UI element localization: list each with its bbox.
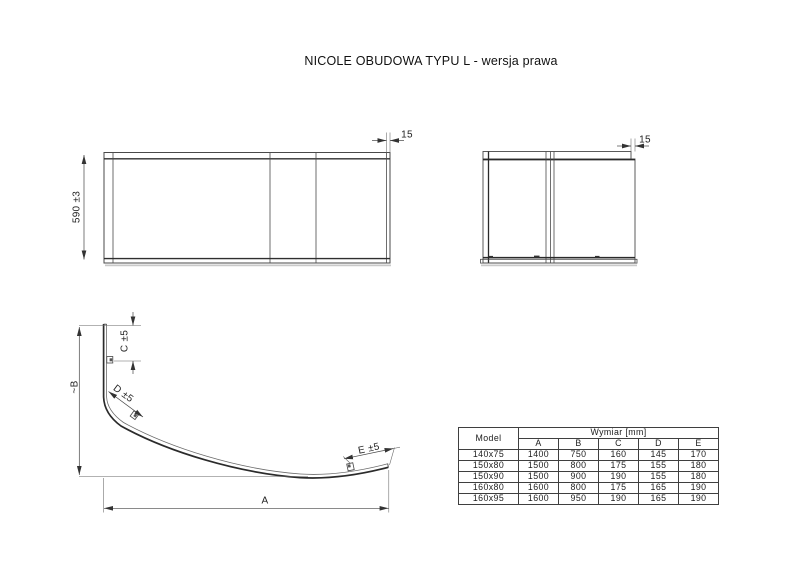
table-cell: 1500 [519, 472, 559, 483]
table-cell: 800 [559, 483, 599, 494]
table-cell: 160 [599, 450, 639, 461]
table-cell: 155 [639, 472, 679, 483]
table-row: 140x75 1400 750 160 145 170 [459, 450, 719, 461]
table-cell: 180 [679, 461, 719, 472]
table-cell: 190 [599, 494, 639, 505]
table-cell: 155 [639, 461, 679, 472]
table-cell: 145 [639, 450, 679, 461]
front-flange-dim-label: 15 [401, 130, 413, 141]
table-header-col-b: B [559, 439, 599, 450]
front-view-dimensions [84, 133, 404, 260]
table-cell: 1600 [519, 483, 559, 494]
profile-dim-c-label: C ±5 [120, 330, 131, 352]
profile-view-drawing [104, 324, 389, 478]
table-row: 160x95 1600 950 190 165 190 [459, 494, 719, 505]
side-flange-dim-label: 15 [639, 135, 651, 146]
front-view-drawing [104, 153, 391, 266]
table-cell: 1600 [519, 494, 559, 505]
table-cell: 950 [559, 494, 599, 505]
table-header-group: Wymiar [mm] [519, 428, 719, 439]
table-header-col-a: A [519, 439, 559, 450]
table-cell-model: 160x80 [459, 483, 519, 494]
table-cell: 175 [599, 483, 639, 494]
table-cell: 165 [639, 494, 679, 505]
table-header-col-d: D [639, 439, 679, 450]
profile-dim-a-label: A [262, 496, 269, 507]
table-row: 150x90 1500 900 190 155 180 [459, 472, 719, 483]
table-cell: 170 [679, 450, 719, 461]
side-view-drawing [481, 152, 638, 266]
table-row: 150x80 1500 800 175 155 180 [459, 461, 719, 472]
table-cell-model: 150x90 [459, 472, 519, 483]
technical-drawing-page: NICOLE OBUDOWA TYPU L - wersja prawa [0, 0, 800, 566]
table-cell: 175 [599, 461, 639, 472]
table-cell: 180 [679, 472, 719, 483]
table-cell: 1500 [519, 461, 559, 472]
front-height-dim-label: 590 ±3 [72, 191, 83, 223]
table-cell: 900 [559, 472, 599, 483]
table-cell: 190 [679, 494, 719, 505]
table-header-model: Model [459, 428, 519, 450]
table-cell: 1400 [519, 450, 559, 461]
table-header-col-e: E [679, 439, 719, 450]
table-cell-model: 160x95 [459, 494, 519, 505]
profile-dim-b-label: ~B [70, 380, 81, 393]
table-cell-model: 150x80 [459, 461, 519, 472]
dimensions-table: Model Wymiar [mm] A B C D E 140x75 1400 … [458, 427, 719, 505]
table-cell: 750 [559, 450, 599, 461]
table-cell: 800 [559, 461, 599, 472]
table-cell-model: 140x75 [459, 450, 519, 461]
table-row: 160x80 1600 800 175 165 190 [459, 483, 719, 494]
table-cell: 190 [599, 472, 639, 483]
table-cell: 190 [679, 483, 719, 494]
table-header-col-c: C [599, 439, 639, 450]
table-cell: 165 [639, 483, 679, 494]
